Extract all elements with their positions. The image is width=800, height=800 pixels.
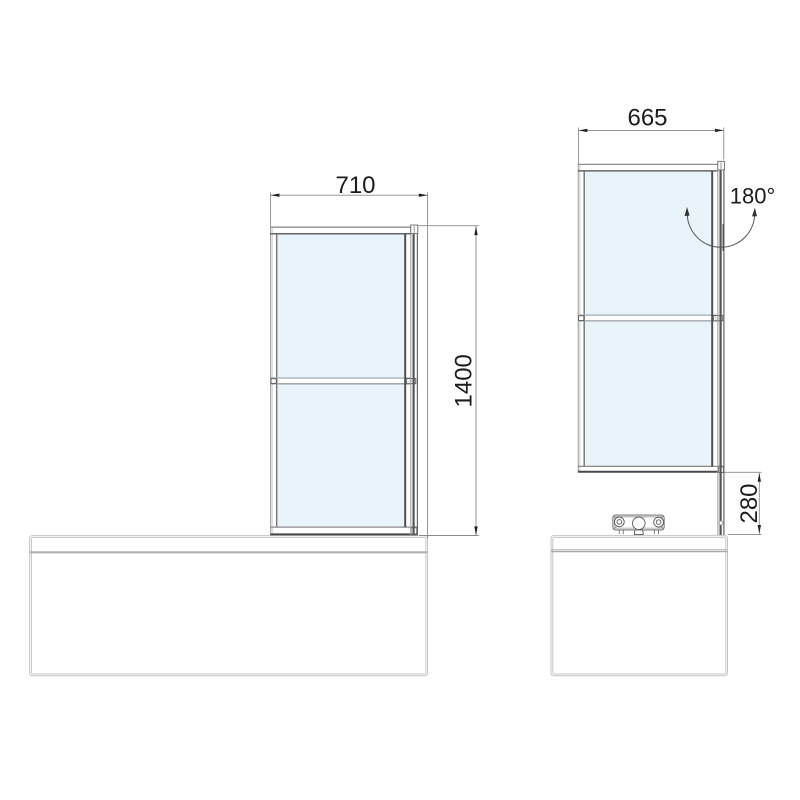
svg-text:280: 280 xyxy=(736,483,763,523)
svg-text:710: 710 xyxy=(335,172,375,199)
svg-text:665: 665 xyxy=(627,105,667,132)
svg-text:180°: 180° xyxy=(730,183,776,208)
svg-text:1400: 1400 xyxy=(451,354,478,407)
